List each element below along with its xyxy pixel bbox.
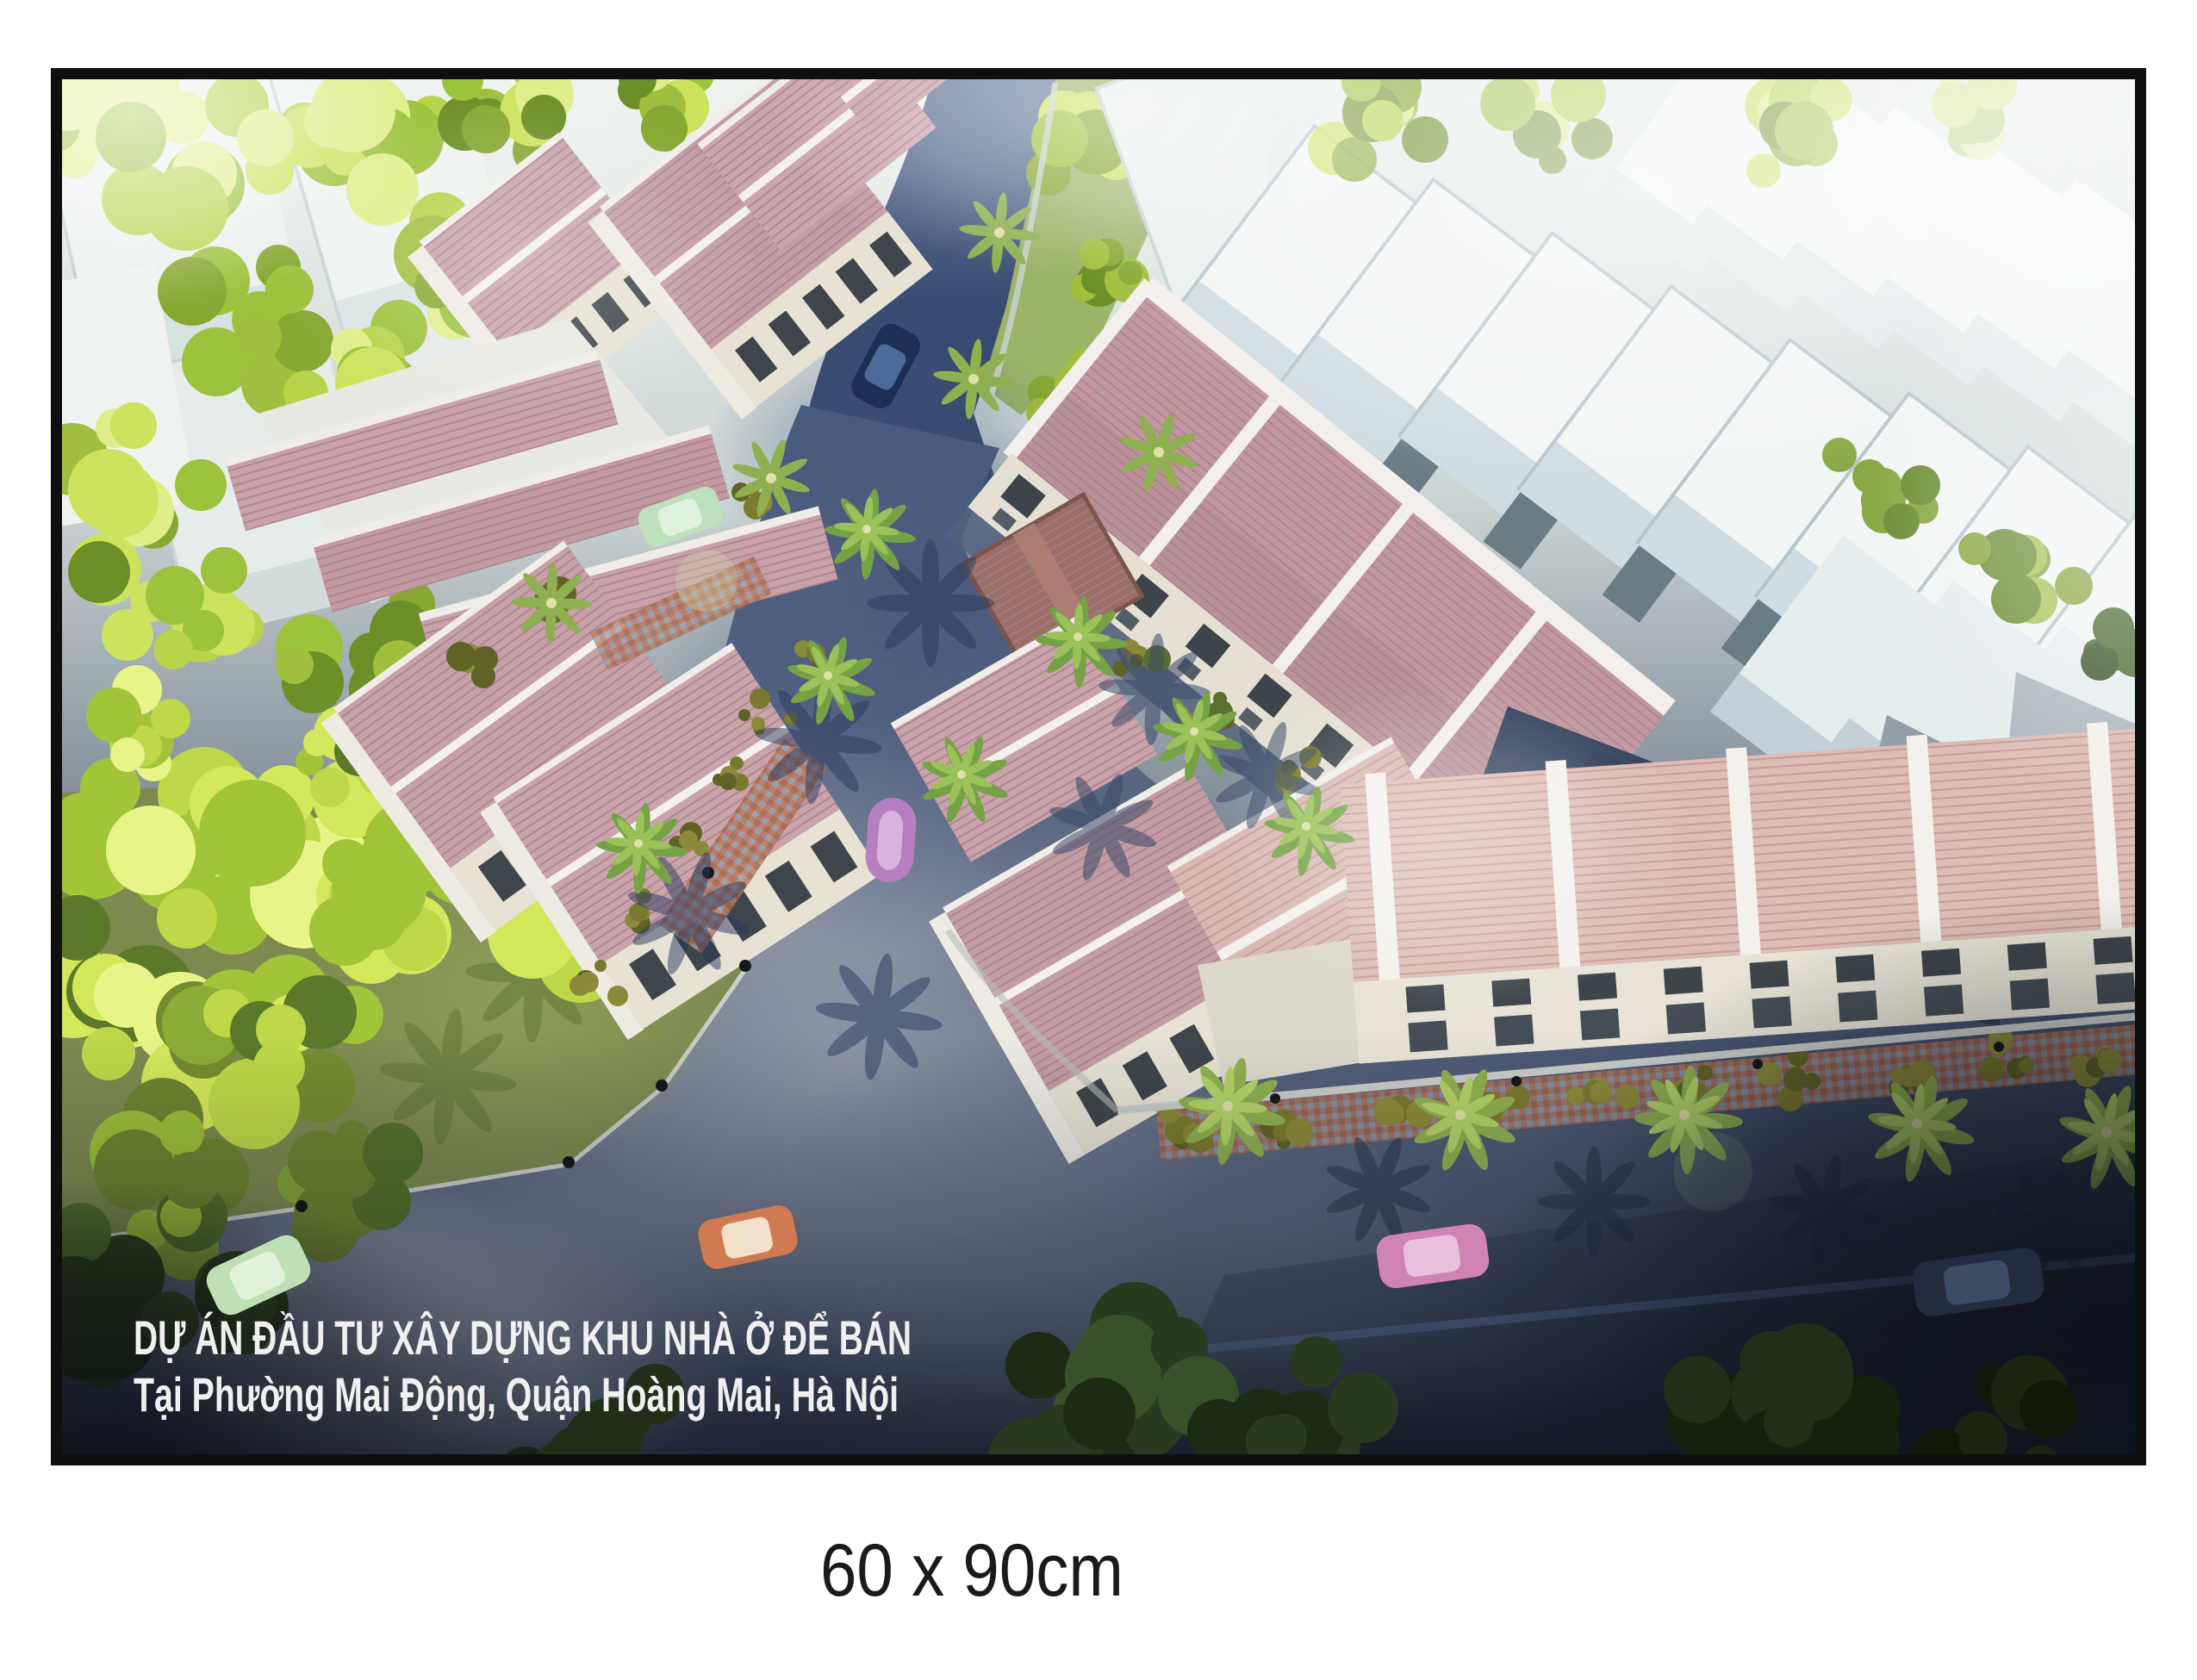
svg-text:Tại Phường Mai Động, Quận Hoàn: Tại Phường Mai Động, Quận Hoàng Mai, Hà … bbox=[134, 1367, 899, 1422]
svg-text:60 x 90cm: 60 x 90cm bbox=[820, 1529, 1123, 1612]
svg-text:DỰ ÁN ĐẦU TƯ XÂY DỰNG KHU NHÀ: DỰ ÁN ĐẦU TƯ XÂY DỰNG KHU NHÀ Ở ĐỂ BÁN bbox=[134, 1310, 912, 1365]
